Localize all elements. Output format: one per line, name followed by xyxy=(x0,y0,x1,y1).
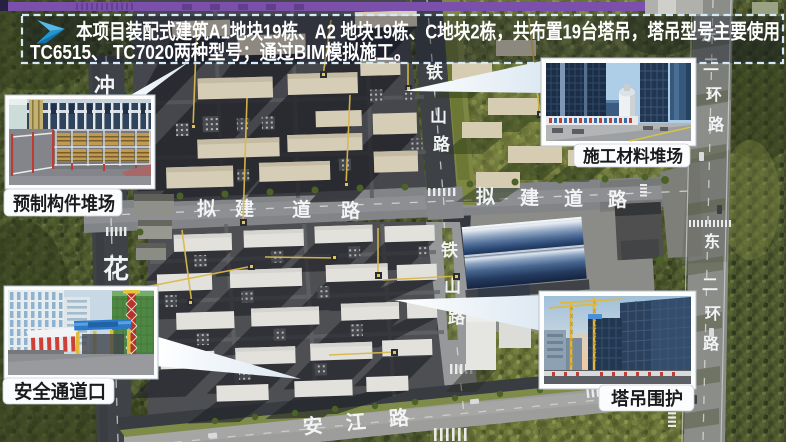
svg-text:环: 环 xyxy=(705,305,721,323)
svg-text:东: 东 xyxy=(704,232,720,251)
svg-text:江: 江 xyxy=(345,410,367,435)
svg-text:路: 路 xyxy=(433,134,451,154)
svg-text:道: 道 xyxy=(564,187,583,210)
svg-text:山: 山 xyxy=(430,107,447,126)
svg-text:预制构件堆场: 预制构件堆场 xyxy=(13,192,115,215)
svg-text:建: 建 xyxy=(520,186,539,209)
svg-text:拟: 拟 xyxy=(476,186,495,208)
svg-text:TC6515、 TC7020两种型号；通过BIM模拟施工。: TC6515、 TC7020两种型号；通过BIM模拟施工。 xyxy=(30,40,411,64)
svg-text:路: 路 xyxy=(388,405,411,431)
svg-text:二: 二 xyxy=(702,277,718,294)
svg-text:安全通道口: 安全通道口 xyxy=(14,380,106,403)
svg-text:铁: 铁 xyxy=(426,62,443,82)
svg-text:铁: 铁 xyxy=(441,240,458,260)
svg-text:路: 路 xyxy=(341,199,361,222)
svg-text:塔吊围护: 塔吊围护 xyxy=(611,388,683,409)
svg-text:拟: 拟 xyxy=(197,198,216,220)
svg-text:花: 花 xyxy=(103,254,129,284)
svg-text:道: 道 xyxy=(292,198,311,221)
svg-text:施工材料堆场: 施工材料堆场 xyxy=(583,146,683,166)
svg-text:路: 路 xyxy=(608,188,628,211)
svg-text:安: 安 xyxy=(302,413,324,439)
svg-text:环: 环 xyxy=(706,86,722,104)
svg-text:本项目装配式建筑A1地块19栋、A2 地块19栋、C地块2栋: 本项目装配式建筑A1地块19栋、A2 地块19栋、C地块2栋，共布置19台塔吊，… xyxy=(76,20,780,44)
svg-text:路: 路 xyxy=(708,115,725,134)
